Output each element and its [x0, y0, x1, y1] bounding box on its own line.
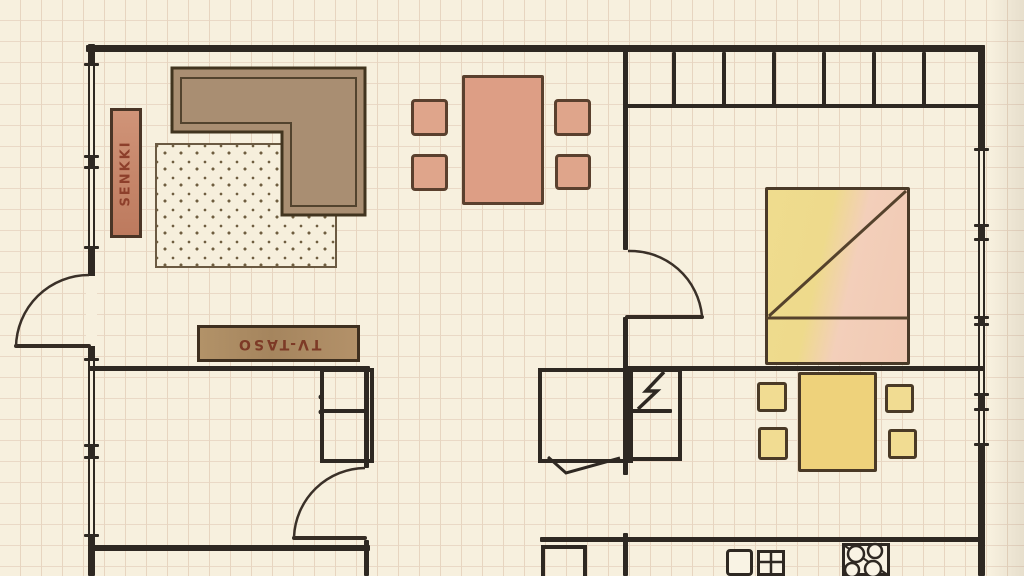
window-tick	[974, 148, 989, 151]
window-tick	[974, 238, 989, 241]
window-tick	[84, 63, 99, 66]
tv-taso-label: TV-TASO	[236, 336, 321, 352]
wardrobe-divider	[872, 52, 876, 106]
wall-kitchen-counter	[540, 537, 985, 542]
window-right-2	[980, 240, 983, 318]
window-tick	[84, 444, 99, 447]
senkki-sideboard: SENKKI	[110, 108, 142, 238]
kitchen-chair-2	[758, 427, 788, 460]
bedroom-door-leaf	[625, 315, 704, 319]
window-right-1	[980, 150, 983, 226]
wardrobe-divider	[672, 52, 676, 106]
dotted-rug	[155, 143, 337, 268]
window-tick	[974, 393, 989, 396]
bedroom-door-arc	[628, 251, 702, 316]
dining-chair-1	[411, 99, 448, 136]
window-tick	[84, 155, 99, 158]
wardrobe-divider	[772, 52, 776, 106]
entry-door-leaf	[14, 344, 91, 348]
smallroom-door-leaf	[292, 536, 367, 540]
window-tick	[84, 534, 99, 537]
window-tick	[84, 246, 99, 249]
wardrobe-divider	[722, 52, 726, 106]
kitchen-chair-3	[885, 384, 914, 413]
window-tick	[974, 443, 989, 446]
window-left-4	[90, 458, 93, 536]
hall-lower-cabinet	[541, 545, 587, 576]
smallroom-door-arc	[294, 468, 365, 537]
wall-top	[86, 45, 985, 52]
dining-table	[462, 75, 544, 205]
electrical-cabinet	[626, 368, 682, 461]
senkki-label: SENKKI	[119, 140, 134, 206]
window-tick	[974, 323, 989, 326]
wardrobe-divider	[922, 52, 926, 106]
stove	[842, 543, 890, 576]
window-tick	[974, 316, 989, 319]
wall-smallroom-bottom	[88, 545, 370, 551]
tv-taso-shelf: TV-TASO	[197, 325, 360, 362]
dining-chair-3	[554, 99, 591, 136]
sink-drainer	[757, 550, 785, 576]
window-tick	[84, 358, 99, 361]
wardrobe-divider	[822, 52, 826, 106]
window-tick	[84, 166, 99, 169]
dining-chair-4	[555, 154, 591, 190]
window-left-1	[90, 65, 93, 157]
electrical-cabinet-divider	[628, 409, 672, 413]
entry-door-arc	[16, 275, 89, 347]
window-left-2	[90, 168, 93, 248]
smallroom-closet-divider	[322, 409, 366, 413]
window-right-3	[980, 325, 983, 395]
kitchen-chair-4	[888, 429, 917, 459]
wall-center-upper	[623, 48, 628, 250]
sink-basin	[726, 549, 753, 576]
photo-edge-shade	[990, 0, 1024, 576]
hall-closet	[538, 368, 633, 463]
window-right-4	[980, 410, 983, 445]
double-bed	[765, 187, 910, 365]
smallroom-closet	[320, 368, 374, 463]
dining-chair-2	[411, 154, 448, 191]
window-tick	[974, 408, 989, 411]
window-tick	[84, 456, 99, 459]
wardrobe-row-front	[623, 104, 985, 108]
window-tick	[974, 224, 989, 227]
entry-doorway-gap	[86, 276, 97, 346]
kitchen-chair-1	[757, 382, 787, 412]
window-left-3	[90, 360, 93, 446]
floor-plan: SENKKI TV-TASO	[0, 0, 1024, 576]
kitchen-table	[798, 372, 877, 472]
